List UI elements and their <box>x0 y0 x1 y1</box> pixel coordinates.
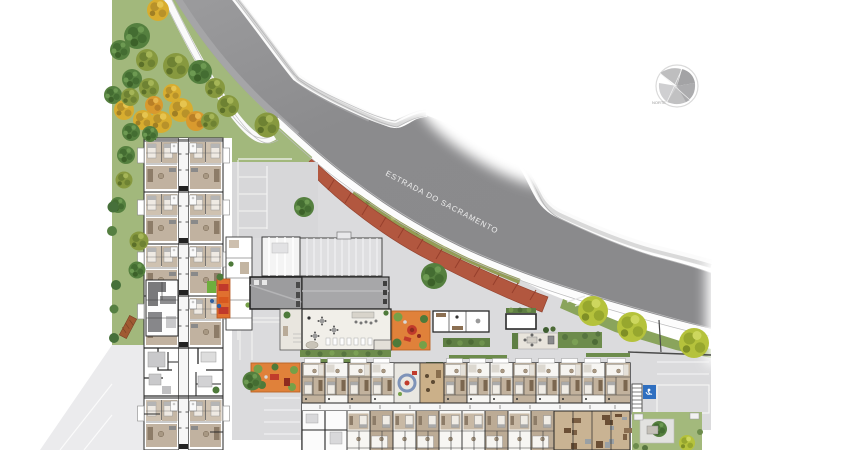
svg-text:NORTE: NORTE <box>652 100 666 105</box>
